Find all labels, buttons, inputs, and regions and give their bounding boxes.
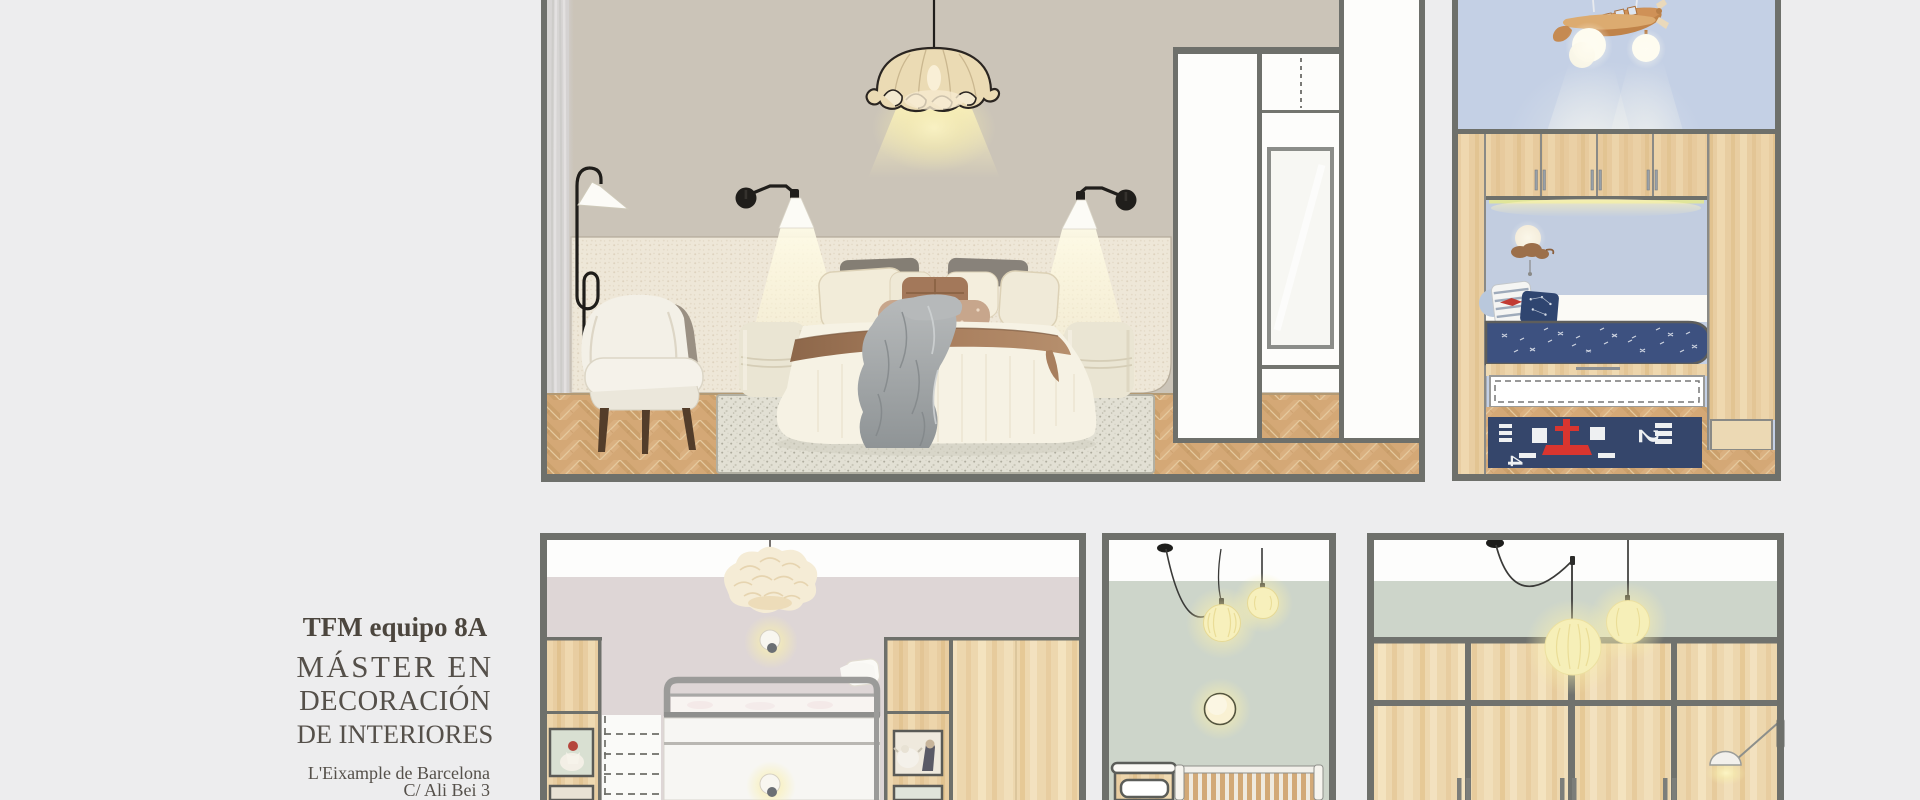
svg-text:TFM equipo 8A: TFM equipo 8A xyxy=(303,612,488,642)
svg-text:MÁSTER EN: MÁSTER EN xyxy=(296,649,493,684)
svg-text:C/ Ali Bei 3: C/ Ali Bei 3 xyxy=(403,780,490,800)
svg-text:4: 4 xyxy=(1503,456,1528,467)
svg-text:DECORACIÓN: DECORACIÓN xyxy=(299,684,491,717)
svg-text:DE INTERIORES: DE INTERIORES xyxy=(297,719,494,749)
svg-text:2: 2 xyxy=(1632,429,1665,444)
